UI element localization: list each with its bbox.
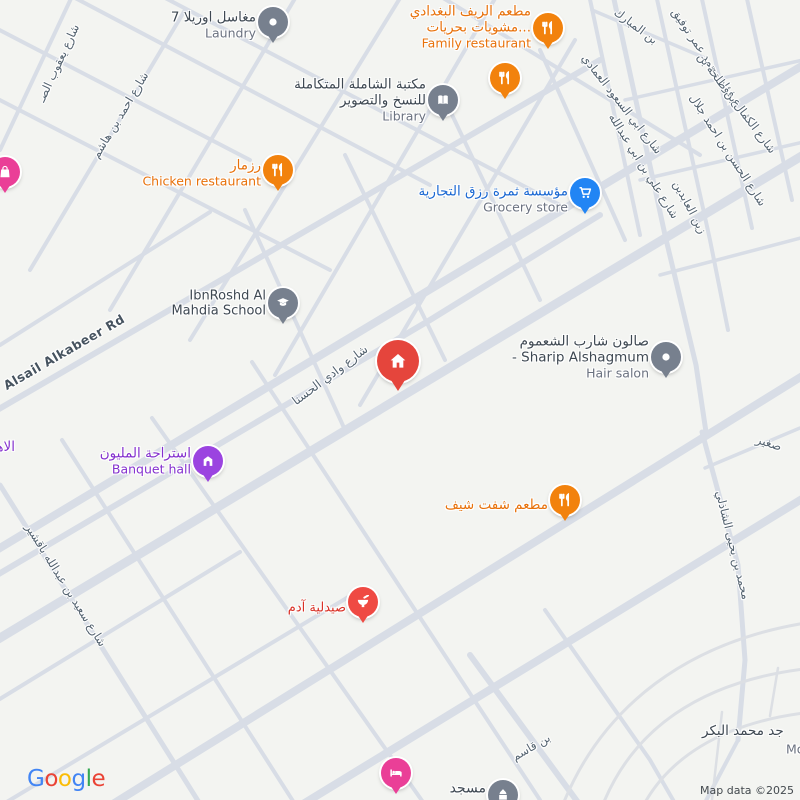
poi-free-label[interactable]: Mo xyxy=(786,742,800,757)
poi-label-line: استراحة المليون xyxy=(100,447,191,463)
poi-pin-laundry[interactable] xyxy=(258,7,288,37)
poi-pin-hair-salon[interactable] xyxy=(651,342,681,372)
poi-label-laundry[interactable]: مغاسل اوريلا 7Laundry xyxy=(171,11,256,42)
poi-label-line: Family restaurant xyxy=(410,37,531,52)
poi-pin-adam-pharmacy[interactable] xyxy=(348,587,378,617)
map-attribution: Map data ©2025 xyxy=(700,784,794,797)
poi-label-line: Banquet hall xyxy=(100,463,191,478)
poi-label-line: Grocery store xyxy=(418,201,568,216)
poi-pin-school[interactable] xyxy=(268,288,298,318)
restaurant-icon xyxy=(271,163,285,177)
poi-free-label[interactable]: جد محمد البكر xyxy=(702,723,784,739)
bag-icon xyxy=(0,165,12,179)
house-icon xyxy=(388,351,408,371)
google-logo-letter: g xyxy=(71,766,85,792)
poi-label-line: Library xyxy=(294,110,426,125)
poi-pin-restaurant-2[interactable] xyxy=(490,63,520,93)
pharmacy-icon xyxy=(356,595,370,609)
cart-icon xyxy=(578,186,592,200)
poi-pin-chicken-restaurant[interactable] xyxy=(263,155,293,185)
poi-label-line: مشويات بحريات... xyxy=(410,21,531,37)
poi-label-banquet-hall[interactable]: استراحة المليونBanquet hall xyxy=(100,447,191,478)
poi-label-mosque[interactable]: مسجد xyxy=(450,781,486,798)
google-logo-letter: o xyxy=(44,766,58,792)
poi-label-line: Mahdia School xyxy=(171,304,266,319)
poi-label-line: - Sharip Alshagmum xyxy=(512,351,649,367)
poi-label-line: مطعم شفت شيف xyxy=(445,498,548,514)
poi-pin-hotel[interactable] xyxy=(381,758,411,788)
poi-label-family-restaurant[interactable]: مطعم الريف البغداديمشويات بحريات...Famil… xyxy=(410,5,531,52)
restaurant-icon xyxy=(558,493,572,507)
poi-label-line: Hair salon xyxy=(512,367,649,382)
poi-pin-grocery[interactable] xyxy=(570,178,600,208)
bed-icon xyxy=(389,766,403,780)
poi-label-line: مسجد xyxy=(450,781,486,798)
google-logo-letter: e xyxy=(91,766,105,792)
poi-label-hair-salon[interactable]: صالون شارب الشعموم- Sharip AlshagmumHair… xyxy=(512,335,649,382)
poi-pin-home-marker[interactable] xyxy=(377,340,419,382)
poi-label-line: رزمار xyxy=(142,159,261,175)
poi-label-line: مؤسسة ثمرة رزق التجارية xyxy=(418,185,568,201)
school-icon xyxy=(276,296,290,310)
poi-label-line: مطعم الريف البغدادي xyxy=(410,5,531,21)
google-logo-letter: o xyxy=(58,766,72,792)
restaurant-icon xyxy=(541,21,555,35)
poi-label-adam-pharmacy[interactable]: صيدلية آدم xyxy=(288,600,346,615)
poi-label-grocery[interactable]: مؤسسة ثمرة رزق التجاريةGrocery store xyxy=(418,185,568,216)
poi-label-line: مكتبة الشاملة المتكاملة xyxy=(294,78,426,94)
poi-pin-family-restaurant[interactable] xyxy=(533,13,563,43)
poi-label-line: صيدلية آدم xyxy=(288,600,346,615)
poi-label-line: مغاسل اوريلا 7 xyxy=(171,11,256,27)
poi-label-school[interactable]: IbnRoshd AlMahdia School xyxy=(171,289,266,320)
poi-label-line: للنسخ والتصوير xyxy=(294,94,426,110)
poi-label-line: Chicken restaurant xyxy=(142,175,261,190)
restaurant-icon xyxy=(498,71,512,85)
dot-icon xyxy=(266,15,280,29)
poi-label-line: Laundry xyxy=(171,27,256,42)
poi-label-chef-restaurant[interactable]: مطعم شفت شيف xyxy=(445,498,548,514)
poi-free-label[interactable]: الاهلـ xyxy=(0,439,15,455)
poi-label-line: IbnRoshd Al xyxy=(171,289,266,304)
google-logo-letter: G xyxy=(27,766,44,792)
banquet-icon xyxy=(201,454,215,468)
poi-label-library[interactable]: مكتبة الشاملة المتكاملةللنسخ والتصويرLib… xyxy=(294,78,426,125)
poi-label-chicken-restaurant[interactable]: رزمارChicken restaurant xyxy=(142,159,261,190)
dot-icon xyxy=(659,350,673,364)
map-canvas[interactable]: Google Map data ©2025 مغاسل اوريلا 7Laun… xyxy=(0,0,800,800)
mosque-icon xyxy=(496,788,510,800)
poi-pin-chef-restaurant[interactable] xyxy=(550,485,580,515)
poi-pin-library[interactable] xyxy=(428,85,458,115)
book-icon xyxy=(436,93,450,107)
google-logo[interactable]: Google xyxy=(27,766,105,792)
poi-pin-banquet-hall[interactable] xyxy=(193,446,223,476)
poi-label-line: صالون شارب الشعموم xyxy=(512,335,649,351)
